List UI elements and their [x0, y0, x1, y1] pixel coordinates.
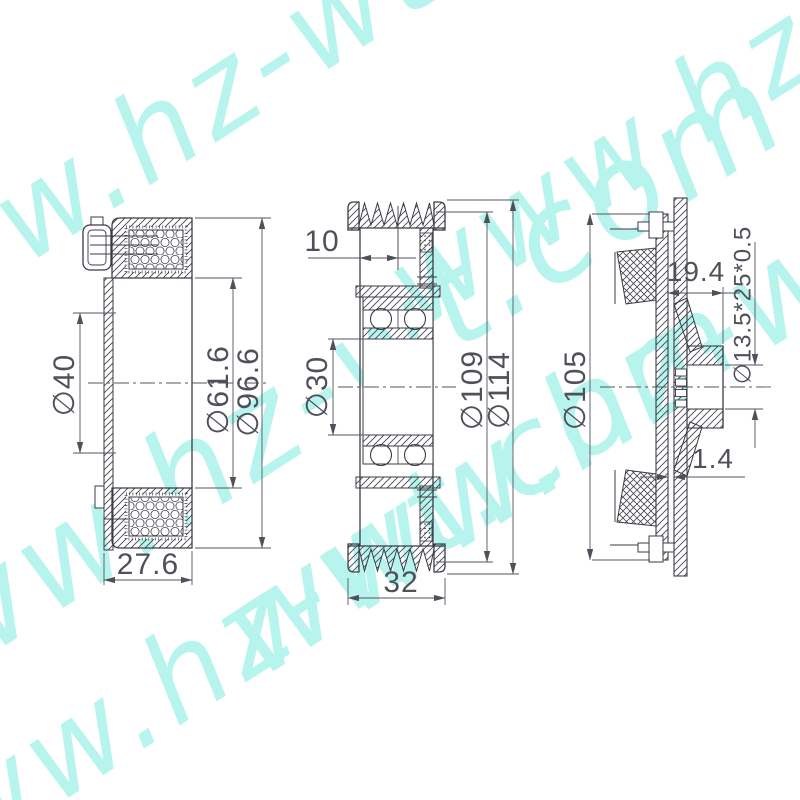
dim-hub-airgap: 1.4 — [692, 443, 734, 474]
clutch-assembly-drawing: www.hz-wt.com www.hz-wt.com www.hz-wt.co… — [0, 0, 800, 800]
dim-hub-depth: 19.4 — [667, 256, 726, 287]
dim-coil-inner: ∅61.6 — [202, 345, 235, 435]
engineering-drawing-page: www.hz-wt.com www.hz-wt.com www.hz-wt.co… — [0, 0, 800, 800]
dim-pulley-offset: 10 — [304, 225, 339, 258]
dim-hub-shaft-spec: ∅13.5*25*0.5 — [729, 226, 756, 384]
dim-coil-outer: ∅96.6 — [232, 347, 265, 437]
dim-hub-disc: ∅105 — [559, 350, 592, 430]
dim-coil-width: 27.6 — [117, 548, 179, 581]
dim-pulley-bore: ∅30 — [301, 356, 334, 419]
dim-pulley-outer: ∅114 — [483, 351, 516, 429]
dim-coil-bore: ∅40 — [48, 354, 81, 417]
dim-pulley-width: 32 — [383, 566, 418, 599]
